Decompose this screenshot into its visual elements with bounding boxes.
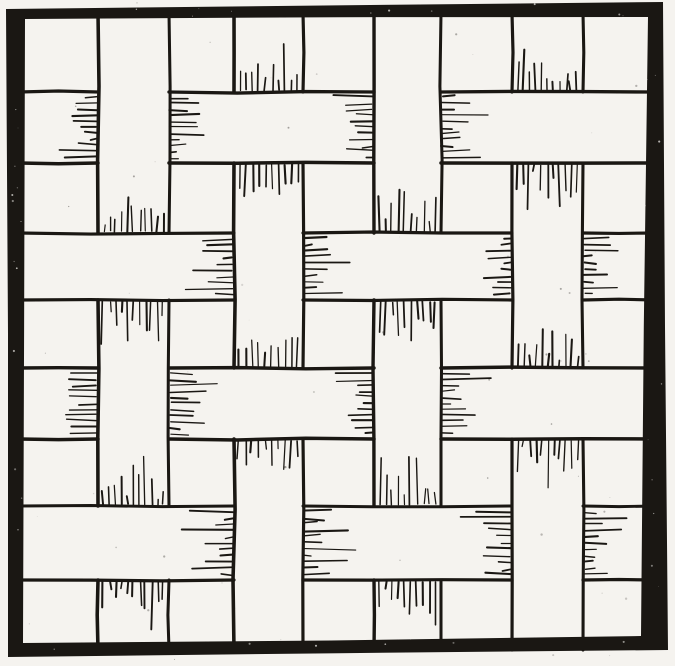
woodcut-weave-figure bbox=[0, 0, 675, 666]
weave-diagram-svg bbox=[0, 0, 675, 666]
